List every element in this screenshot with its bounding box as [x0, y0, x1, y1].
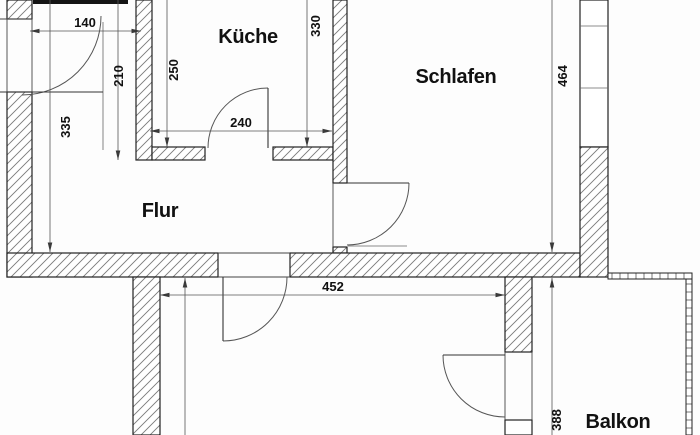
room-label-bedroom: Schlafen — [416, 66, 497, 88]
railing-east — [686, 279, 692, 435]
wall-left-lower — [7, 92, 32, 277]
wall-top-strip — [33, 0, 128, 4]
wall-living-east-upper — [505, 277, 532, 352]
dim-text-living-width: 452 — [322, 279, 344, 294]
wall-living-west — [133, 277, 160, 435]
wall-divider-lower — [333, 247, 347, 253]
dim-text-bedroom-depth: 464 — [555, 64, 570, 86]
dim-text-hallway-left: 335 — [58, 116, 73, 138]
railing-north — [608, 273, 692, 279]
wall-east-window — [580, 0, 608, 147]
wall-living-east-lower — [505, 420, 532, 435]
dim-text-kitchen-width: 240 — [230, 115, 252, 130]
floor-plan-svg: 140 210 335 250 330 240 452 464 388 Küch… — [0, 0, 700, 435]
wall-divider-upper — [333, 0, 347, 183]
wall-kitchen-south-left — [152, 147, 205, 160]
dim-text-kitchen-left: 250 — [166, 59, 181, 81]
dim-text-balcony-depth: 388 — [549, 409, 564, 431]
dim-text-entry-depth: 210 — [111, 65, 126, 87]
room-label-hallway: Flur — [142, 200, 179, 222]
room-label-kitchen: Küche — [218, 26, 278, 48]
wall-kitchen-south-right — [273, 147, 333, 160]
dim-text-entry-width: 140 — [74, 15, 96, 30]
wall-kitchen-west — [136, 0, 152, 160]
wall-south-band-left — [7, 253, 218, 277]
room-label-balcony: Balkon — [586, 411, 651, 433]
dim-text-kitchen-right: 330 — [308, 15, 323, 37]
wall-left-upper — [7, 0, 32, 19]
wall-east-lower — [580, 147, 608, 277]
wall-south-band-right — [290, 253, 580, 277]
floor-plan: 140 210 335 250 330 240 452 464 388 Küch… — [0, 0, 700, 435]
